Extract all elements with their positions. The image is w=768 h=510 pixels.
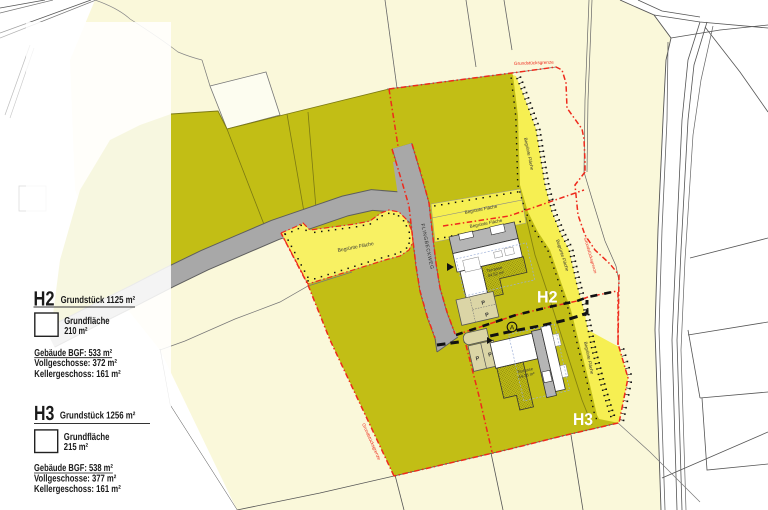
svg-text:Grundstück 1125 m²: Grundstück 1125 m² — [61, 295, 136, 306]
svg-text:A: A — [510, 324, 515, 331]
svg-text:H3: H3 — [34, 402, 54, 425]
svg-text:Gebäude BGF: 538 m²: Gebäude BGF: 538 m² — [34, 463, 113, 474]
svg-text:Grundstück 1256 m²: Grundstück 1256 m² — [60, 411, 136, 422]
svg-text:H3: H3 — [573, 410, 593, 429]
svg-text:Vollgeschosse: 372 m²: Vollgeschosse: 372 m² — [34, 358, 117, 369]
svg-text:Kellergeschoss: 161 m²: Kellergeschoss: 161 m² — [34, 369, 121, 380]
svg-text:H2: H2 — [537, 289, 558, 307]
svg-text:Kellergeschoss: 161 m²: Kellergeschoss: 161 m² — [34, 484, 121, 495]
svg-text:215 m²: 215 m² — [64, 442, 89, 453]
svg-text:210 m²: 210 m² — [64, 326, 88, 337]
